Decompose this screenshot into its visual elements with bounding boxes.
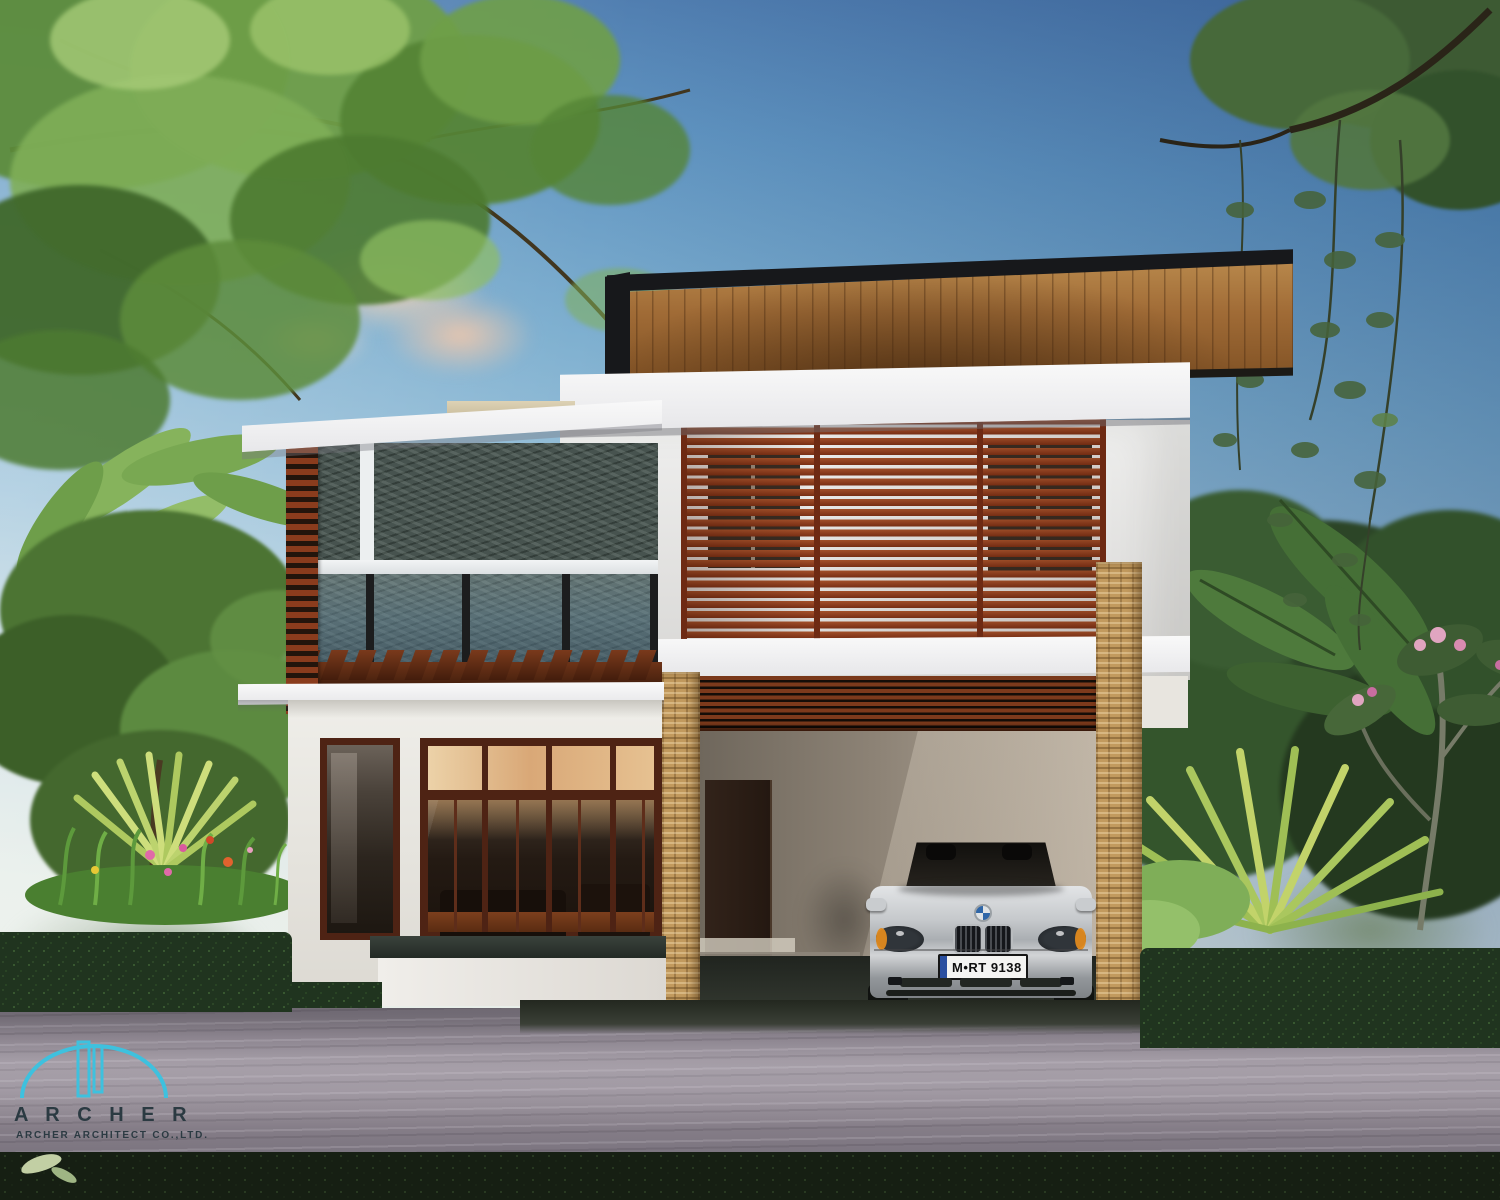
headlight-indicator	[876, 928, 887, 950]
door-mullion	[482, 800, 488, 932]
architectural-rendering: M•RT 9138 A R C H E R ARCHER ARCHITECT C…	[0, 0, 1500, 1200]
door-mullion-thin	[578, 800, 581, 932]
planter-bench-top	[370, 936, 666, 958]
curtain-highlight	[331, 753, 357, 923]
bumper-crease	[874, 949, 1088, 951]
logo-subtitle: ARCHER ARCHITECT CO.,LTD.	[16, 1130, 209, 1141]
bumper-intake	[960, 978, 1012, 987]
headlight-glint	[1056, 931, 1064, 936]
carport-louver-band	[686, 676, 1098, 731]
door-mullion-thin	[454, 800, 457, 932]
wall-top-shadow	[288, 700, 662, 718]
transom-mullion	[546, 746, 552, 790]
door-mullion-thin	[642, 800, 645, 932]
door-mullion-thin	[516, 800, 519, 932]
car-cowl-shadow	[898, 882, 1064, 896]
hedge-left	[0, 932, 292, 1012]
license-plate: M•RT 9138	[938, 954, 1028, 980]
door-glass-interior	[428, 800, 654, 932]
glass-reflection	[428, 800, 654, 932]
louver-frame	[977, 394, 983, 642]
fog-light	[1060, 977, 1074, 985]
headlight-indicator	[1075, 928, 1086, 950]
bmw-roundel-icon	[974, 904, 992, 922]
transom-mullion	[482, 746, 488, 790]
arch-and-towers-icon	[14, 1040, 189, 1102]
tree-foliage	[1190, 0, 1500, 210]
planter-bench-body	[378, 958, 666, 1006]
door-mullion	[610, 800, 616, 932]
car-headrest	[926, 844, 956, 860]
car: M•RT 9138	[866, 836, 1096, 1012]
bumper-lip	[886, 990, 1076, 996]
right-corner-wall	[1142, 676, 1188, 728]
transom-rail	[420, 790, 662, 800]
stone-pillar-right	[1096, 562, 1142, 1008]
fog-light	[888, 977, 902, 985]
foreground-grass-strip	[0, 1152, 1500, 1200]
hedge-right	[1140, 948, 1500, 1048]
bumper-intake	[1020, 978, 1062, 987]
transom-glass	[428, 746, 654, 790]
balcony-top-rail	[288, 560, 658, 574]
narrow-window	[320, 738, 400, 940]
logo-name: A R C H E R	[14, 1104, 193, 1127]
balcony-glass-post	[462, 574, 470, 666]
car-headrest	[1002, 844, 1032, 860]
car-mirror	[1076, 898, 1096, 911]
transom-mullion	[610, 746, 616, 790]
plate-number: M•RT 9138	[947, 960, 1022, 975]
wall-mullion-vertical	[360, 443, 374, 570]
vertical-louver-panel	[286, 436, 318, 714]
carport-door	[705, 780, 772, 958]
car-mirror	[866, 898, 886, 911]
door-mullion	[546, 800, 552, 932]
carport-apron-paving	[520, 1000, 1145, 1034]
bumper-intake	[900, 978, 952, 987]
living-room-glazing	[420, 738, 662, 940]
narrow-window-glass	[327, 745, 393, 933]
plate-euroband	[940, 956, 947, 978]
archer-logo: A R C H E R ARCHER ARCHITECT CO.,LTD.	[14, 1040, 374, 1150]
headlight-glint	[896, 931, 904, 936]
stone-pillar-left	[662, 672, 700, 1006]
